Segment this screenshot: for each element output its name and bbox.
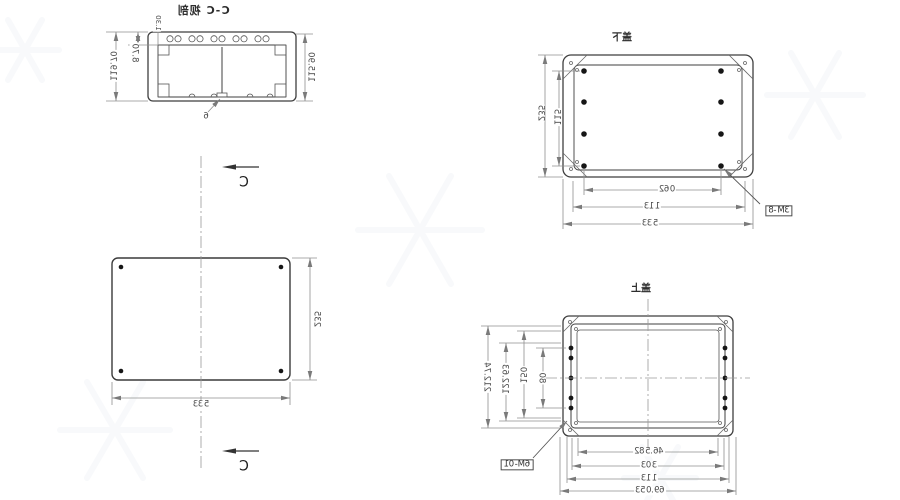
dim-cover-height: 235 [311, 310, 320, 328]
engineering-drawing: 剖视 C-C 119.70 8.70 1.30 115.90 6 C C 335… [0, 0, 900, 500]
dim-ub-screw-span: 311 [640, 474, 658, 483]
dim-overall-height: 119.70 [107, 50, 116, 82]
thread-callout-8m3: 8-M3 [765, 205, 792, 216]
dim-lip-step: 1.30 [153, 14, 161, 32]
drawing-canvas [0, 0, 900, 500]
dim-ub-overall-depth: 212.74 [481, 361, 490, 393]
dim-ub-overall-width: 350.96 [634, 486, 666, 495]
dim-ub-span-a: 122.63 [499, 363, 508, 395]
section-marker-top: C [238, 175, 250, 190]
dim-rib-depth: 8.70 [129, 43, 138, 64]
dim-lc-screw-span: 311 [643, 202, 661, 211]
lower-cover-title: 下盖 [611, 33, 633, 44]
screw-holes-8 [581, 68, 724, 169]
upper-body-title: 上盖 [630, 284, 652, 295]
dim-lc-width: 335 [641, 219, 659, 228]
section-view-title: 剖视 C-C [176, 5, 231, 17]
thread-callout-10m6: 10-M6 [501, 459, 534, 470]
dim-cover-width: 335 [192, 400, 210, 409]
lower-cover-geometry [563, 55, 753, 177]
dim-lc-hole-rows: 115 [551, 108, 560, 126]
dim-inner-height: 115.90 [305, 51, 314, 83]
dim-ub-wall-span: 303 [640, 461, 658, 470]
dim-lc-hole-cols: 260 [658, 185, 676, 194]
dim-ub-inner-width: 285.64 [633, 447, 665, 456]
dim-wall-thickness: 6 [202, 112, 209, 121]
section-view-dimensions [106, 20, 313, 112]
cover-outline-centerline [201, 156, 259, 468]
section-view-geometry [148, 32, 296, 101]
section-marker-bottom: C [238, 459, 250, 474]
dim-ub-span-c: 80 [536, 372, 545, 385]
dim-ub-span-b: 150 [517, 366, 526, 384]
dim-lc-height: 235 [535, 104, 544, 122]
